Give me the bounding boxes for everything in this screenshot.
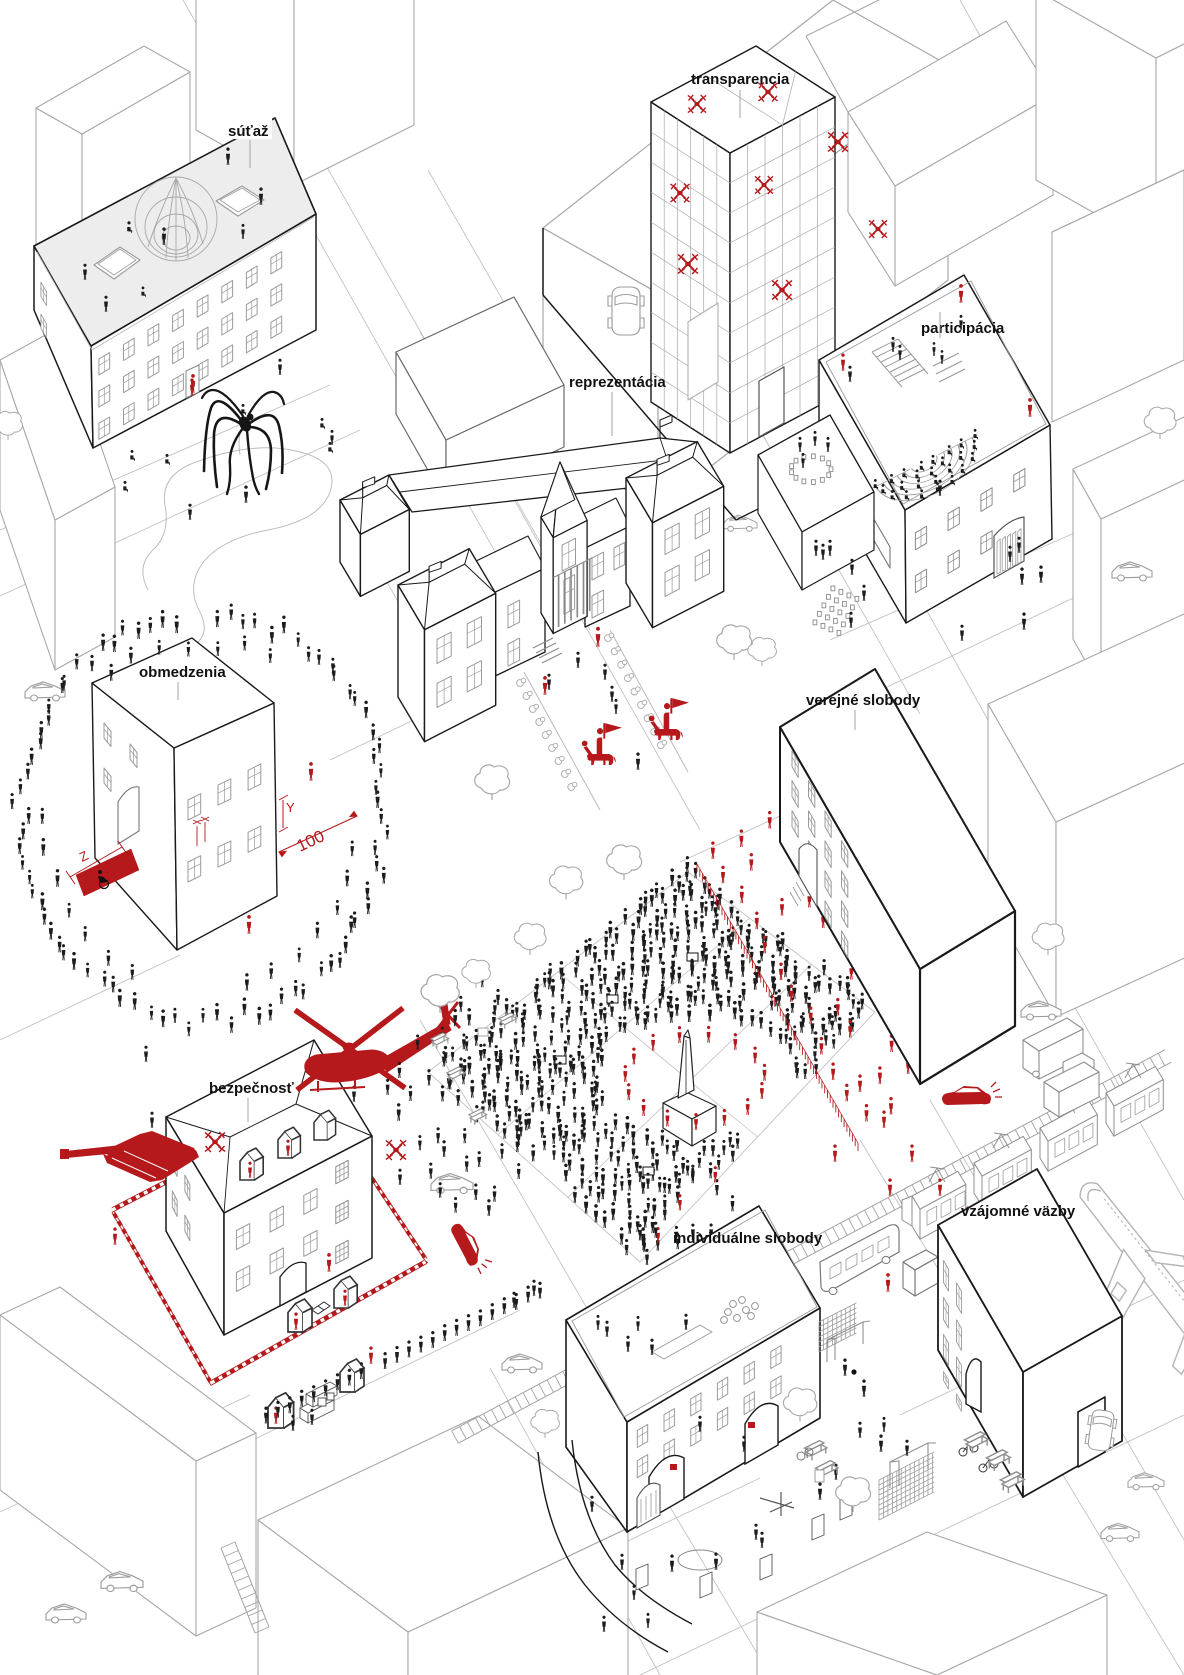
svg-text:verejné slobody: verejné slobody — [806, 692, 921, 709]
svg-text:participácia: participácia — [921, 320, 1005, 337]
svg-text:individuálne slobody: individuálne slobody — [673, 1230, 823, 1247]
svg-text:bezpečnosť: bezpečnosť — [209, 1080, 295, 1097]
svg-text:obmedzenia: obmedzenia — [139, 664, 226, 681]
svg-text:súťaž: súťaž — [228, 123, 269, 140]
svg-text:reprezentácia: reprezentácia — [569, 374, 666, 391]
svg-text:transparencia: transparencia — [691, 71, 790, 88]
svg-text:vzájomné väzby: vzájomné väzby — [961, 1203, 1076, 1220]
svg-text:Y: Y — [286, 800, 295, 815]
